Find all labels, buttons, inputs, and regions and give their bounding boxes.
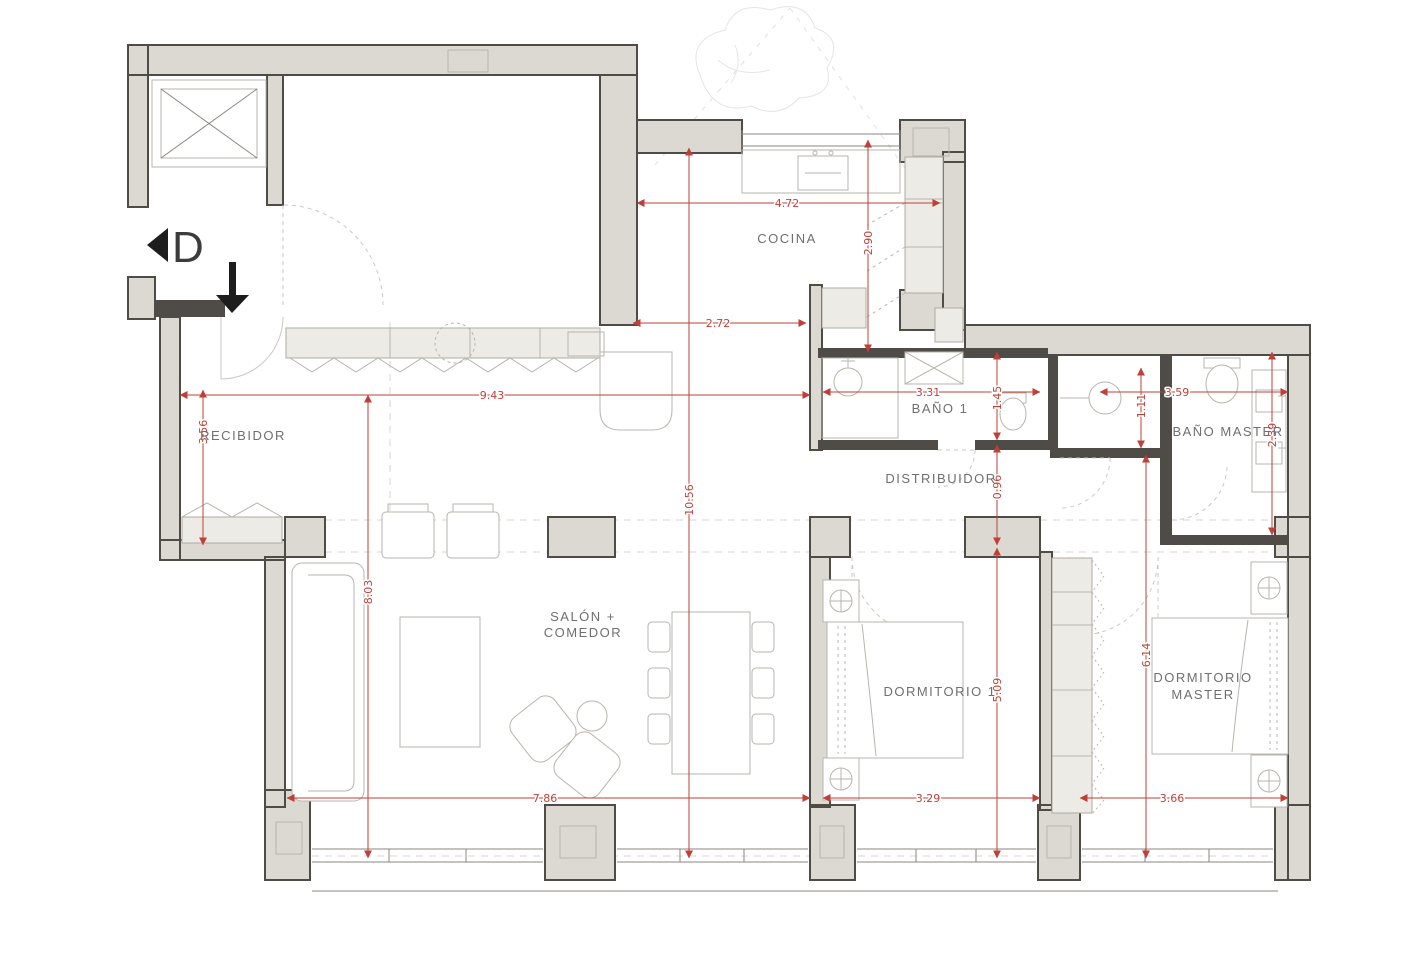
- label-dormitorio-master-line1: DORMITORIO: [1153, 670, 1252, 685]
- label-bano-master: BAÑO MASTER: [1172, 424, 1283, 439]
- dim-bano-master-width: 3.59: [1165, 386, 1190, 399]
- label-bano1: BAÑO 1: [912, 401, 969, 416]
- dim-total-depth: 10.56: [683, 484, 696, 516]
- label-dormitorio-master-line2: MASTER: [1171, 687, 1234, 702]
- dim-dorm-master-height: 6.14: [1140, 643, 1153, 668]
- kitchen-tall-units: [867, 157, 943, 317]
- dim-shower-depth: 1.11: [1135, 394, 1148, 419]
- wardrobe-column: [1052, 558, 1104, 814]
- kitchen-counter: [742, 150, 900, 193]
- entry-arrow-shaft: [229, 262, 236, 295]
- label-recibidor: RECIBIDOR: [200, 428, 286, 443]
- label-distribuidor: DISTRIBUIDOR: [885, 471, 996, 486]
- armchair-pair: [382, 504, 499, 558]
- dim-salon-width: 7.86: [533, 792, 558, 805]
- dining-table: [648, 612, 774, 774]
- label-salon-line2: COMEDOR: [544, 625, 622, 640]
- dim-dorm-master-width: 3.66: [1160, 792, 1185, 805]
- dim-bano1-width: 3.31: [916, 386, 941, 399]
- label-salon-line1: SALÓN +: [550, 609, 616, 624]
- dim-bano1-depth: 1.45: [991, 386, 1004, 411]
- entry-letter: D: [172, 223, 204, 272]
- recibidor-cabinet: [182, 503, 282, 543]
- floor-plan-svg: D 4.72 2.90 2.72 9.43 3.56 3.31 1.45 3.5…: [0, 0, 1422, 960]
- floor-plan-page: D 4.72 2.90 2.72 9.43 3.56 3.31 1.45 3.5…: [0, 0, 1422, 960]
- dim-kitchen-width: 4.72: [775, 197, 800, 210]
- door-direction-left-icon: [147, 228, 168, 262]
- elevator: [152, 80, 266, 167]
- sofa: [292, 563, 364, 801]
- dim-salon-height: 8.03: [362, 580, 375, 605]
- label-dormitorio1: DORMITORIO 1: [883, 684, 996, 699]
- dim-dorm1-width: 3.29: [916, 792, 941, 805]
- dim-kitchen-depth: 2.90: [862, 231, 875, 256]
- dim-living-span: 9.43: [480, 389, 505, 402]
- dim-kitchen-pass: 2.72: [706, 317, 731, 330]
- entry-markers: D: [147, 223, 249, 313]
- rug: [400, 617, 480, 747]
- label-cocina: COCINA: [757, 231, 817, 246]
- shower-room-fixtures: [1060, 382, 1121, 414]
- sideboard: [286, 323, 672, 430]
- lounge-chairs: [505, 691, 625, 803]
